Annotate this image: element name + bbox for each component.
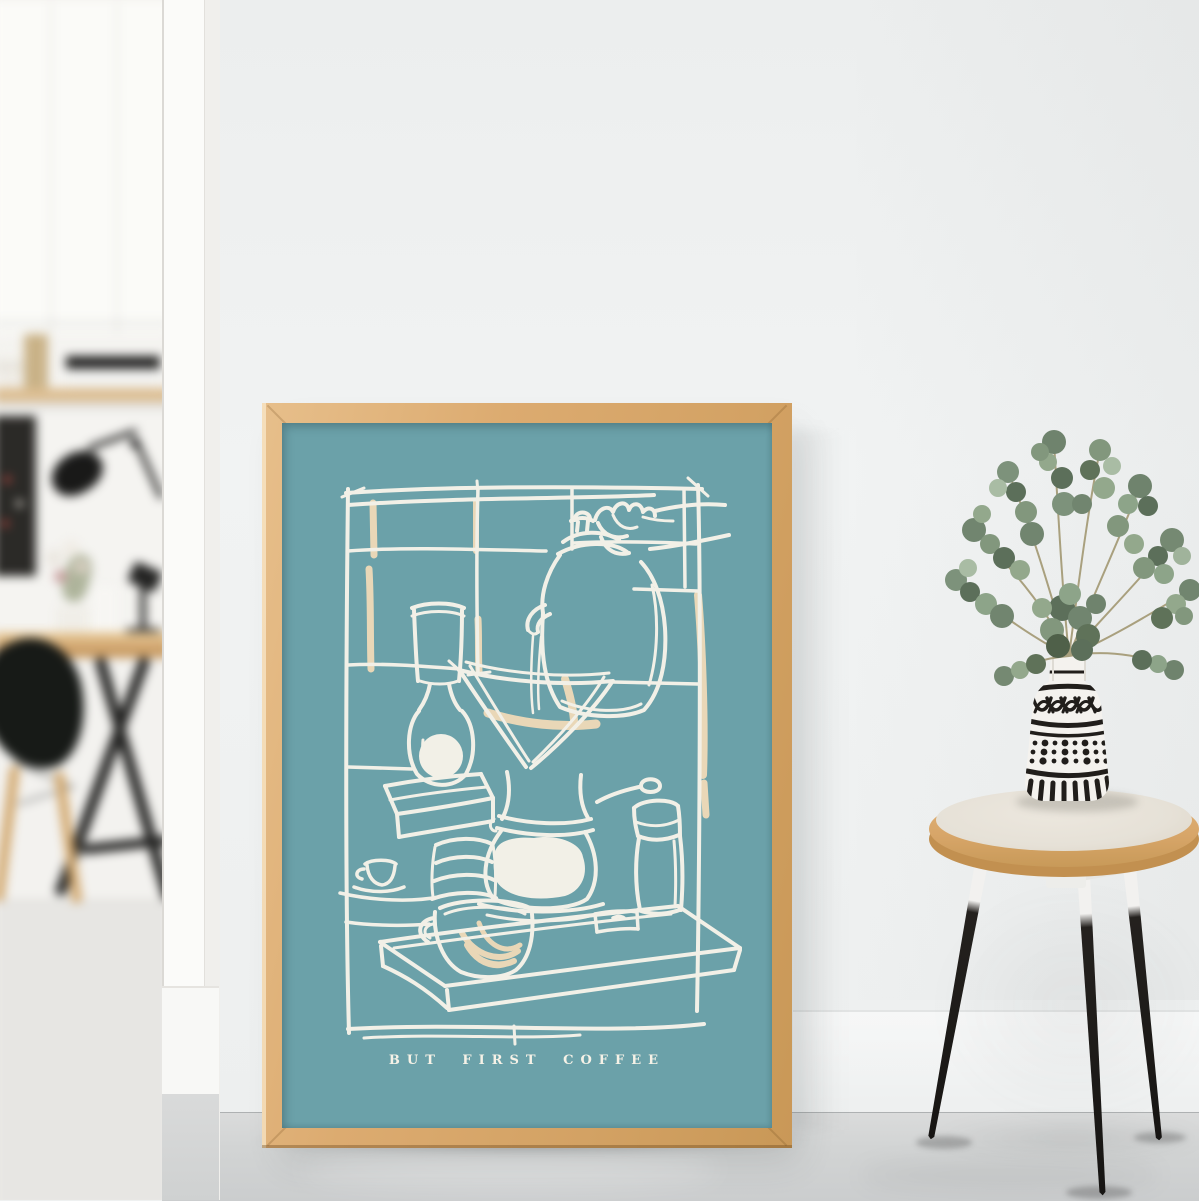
poster-art: BUT FIRST COFFEE	[282, 423, 772, 1128]
small-lamp-head	[127, 561, 163, 593]
cabinet-seam	[116, 2, 118, 334]
pin	[2, 520, 9, 527]
room-contents	[0, 0, 168, 1200]
plant-leaves	[945, 430, 1199, 686]
flower	[54, 570, 67, 583]
radio-top	[66, 356, 160, 369]
leg-shadow	[916, 1136, 972, 1149]
cabinet-seam	[50, 2, 52, 334]
flower	[62, 540, 80, 558]
frame-bottom-edge	[262, 1145, 792, 1148]
coffee-grinder	[597, 779, 682, 913]
interior-photo: { "poster": { "caption": "BUT FIRST COFF…	[0, 0, 1199, 1200]
leg-shadow	[1066, 1186, 1132, 1199]
poster-frame: BUT FIRST COFFEE	[262, 403, 792, 1148]
flower	[74, 560, 88, 574]
doorway-room-view	[0, 0, 168, 1200]
room-floor	[0, 900, 168, 1200]
cabinet-shadow	[0, 320, 168, 334]
floor-stain	[860, 1160, 1160, 1190]
pin	[4, 476, 11, 483]
poster-wall-shadow	[790, 430, 846, 1130]
desk-lamp-joint	[130, 438, 140, 448]
espresso-cup	[340, 860, 439, 925]
white-cabinets	[0, 0, 168, 334]
kraft-book	[24, 334, 48, 388]
desk-lamp-head	[44, 442, 111, 505]
shelf-shadow	[0, 402, 168, 414]
baseboard	[162, 988, 219, 1094]
poster-caption: BUT FIRST COFFEE	[282, 1053, 772, 1068]
coffee-sketch	[282, 423, 772, 1128]
wall-shelf	[0, 388, 168, 402]
pinboard	[0, 416, 36, 576]
floor-at-trim	[162, 1094, 219, 1200]
paper-card	[92, 586, 118, 636]
flower	[46, 550, 62, 566]
desk-lamp-arm	[134, 441, 164, 500]
eucalyptus-plant	[912, 408, 1199, 708]
door-trim	[162, 0, 219, 1200]
frame-highlight	[262, 403, 266, 1148]
pin	[16, 500, 23, 507]
